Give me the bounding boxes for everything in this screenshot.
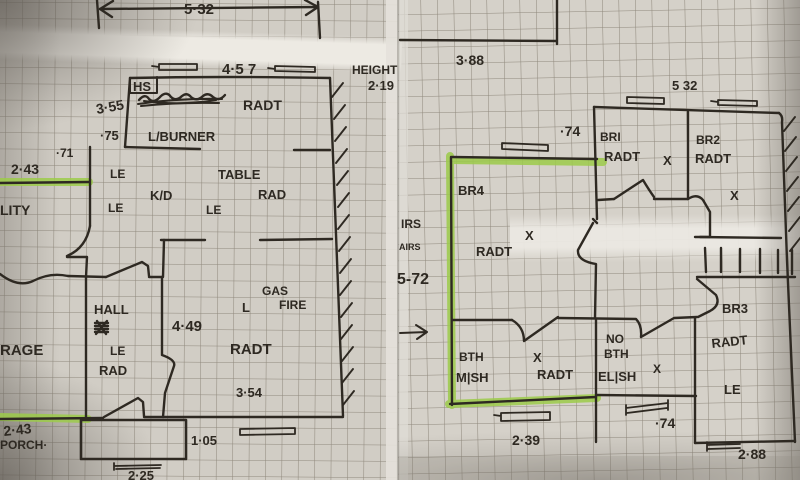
svg-text:4·5 7: 4·5 7 — [222, 61, 256, 78]
svg-text:X: X — [663, 153, 672, 168]
svg-text:AIRS: AIRS — [399, 242, 421, 252]
svg-text:5·32: 5·32 — [184, 1, 214, 18]
svg-text:5-72: 5-72 — [397, 271, 429, 288]
svg-text:RADT: RADT — [695, 151, 731, 166]
svg-text:RADT: RADT — [230, 341, 272, 358]
svg-text:BTH: BTH — [604, 347, 629, 361]
svg-text:PORCH·: PORCH· — [0, 438, 47, 452]
svg-text:·71: ·71 — [56, 146, 74, 160]
svg-text:FIRE: FIRE — [279, 298, 306, 312]
svg-text:RADT: RADT — [476, 244, 512, 259]
svg-text:BR2: BR2 — [696, 133, 720, 147]
svg-text:4·49: 4·49 — [172, 318, 202, 335]
svg-text:X: X — [653, 362, 661, 376]
svg-text:HALL: HALL — [94, 302, 129, 317]
svg-text:·75: ·75 — [100, 128, 119, 143]
svg-text:2·19: 2·19 — [368, 78, 394, 93]
svg-text:TABLE: TABLE — [218, 167, 261, 182]
svg-text:LE: LE — [110, 167, 125, 181]
svg-text:K/D: K/D — [150, 188, 172, 203]
svg-text:LITY: LITY — [0, 202, 31, 218]
svg-text:RAGE: RAGE — [0, 342, 43, 359]
svg-text:EL|SH: EL|SH — [598, 369, 636, 384]
svg-text:RADT: RADT — [243, 97, 282, 113]
svg-text:L: L — [242, 300, 250, 315]
svg-text:M|SH: M|SH — [456, 370, 489, 385]
svg-text:BTH: BTH — [459, 350, 484, 364]
svg-text:LE: LE — [724, 382, 741, 397]
svg-text:RADT: RADT — [537, 367, 573, 382]
svg-text:RAD: RAD — [258, 187, 286, 202]
svg-text:BR3: BR3 — [722, 301, 748, 316]
svg-text:RADT: RADT — [604, 149, 640, 164]
svg-text:2·43: 2·43 — [11, 161, 39, 177]
svg-text:NO: NO — [606, 332, 624, 346]
svg-text:BR4: BR4 — [458, 183, 485, 198]
svg-text:GAS: GAS — [262, 284, 288, 298]
svg-text:1·05: 1·05 — [191, 433, 217, 448]
svg-text:RAD: RAD — [99, 363, 127, 378]
svg-text:LE: LE — [108, 201, 123, 215]
svg-text:IRS: IRS — [401, 217, 421, 231]
svg-text:·74: ·74 — [655, 415, 675, 431]
svg-text:2·43: 2·43 — [3, 420, 33, 439]
svg-text:·74: ·74 — [560, 123, 580, 139]
svg-text:HS: HS — [133, 79, 151, 94]
svg-text:HEIGHT: HEIGHT — [352, 63, 398, 77]
svg-text:X: X — [525, 228, 534, 243]
svg-text:3·54: 3·54 — [236, 385, 263, 400]
svg-text:LE: LE — [206, 203, 221, 217]
svg-text:2·88: 2·88 — [738, 446, 766, 462]
svg-text:2·25: 2·25 — [128, 468, 154, 480]
svg-text:BRI: BRI — [600, 130, 621, 144]
svg-text:3·88: 3·88 — [456, 52, 484, 68]
svg-text:X: X — [533, 350, 542, 365]
svg-text:L/BURNER: L/BURNER — [148, 129, 216, 144]
svg-text:5 32: 5 32 — [672, 78, 697, 93]
svg-text:2·39: 2·39 — [512, 432, 540, 448]
svg-text:LE: LE — [110, 344, 125, 358]
svg-text:X: X — [730, 188, 739, 203]
